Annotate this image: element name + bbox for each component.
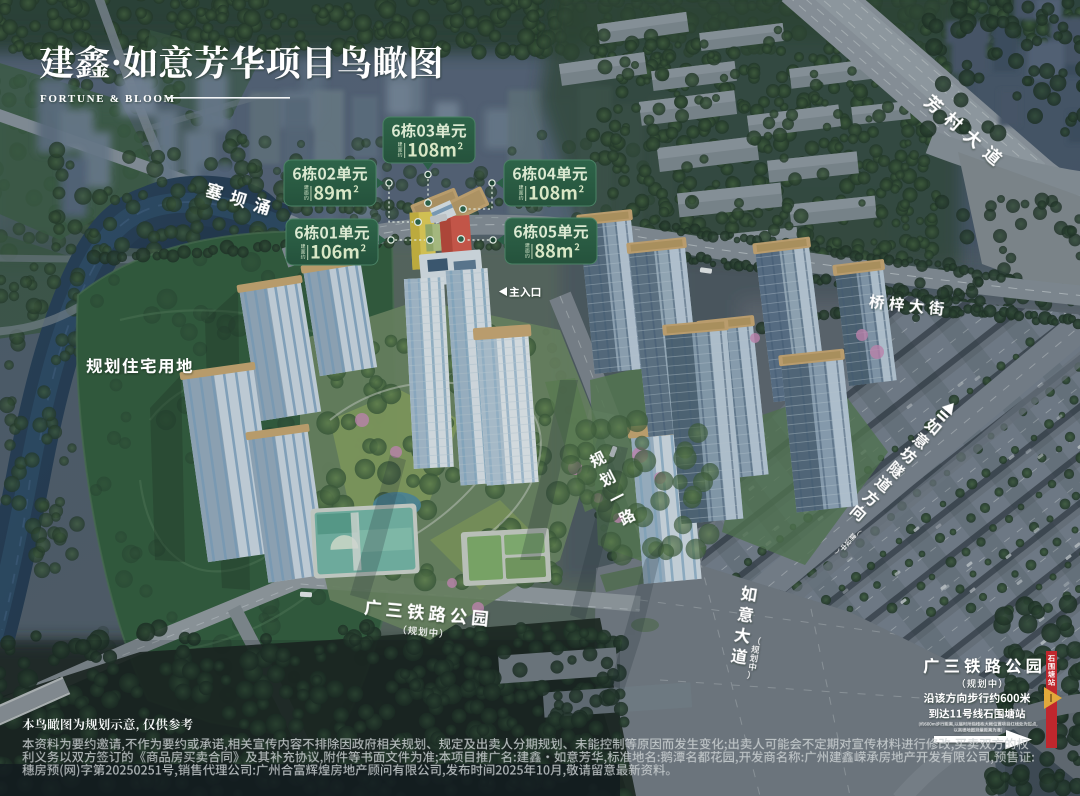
svg-text:FORTUNE & BLOOM: FORTUNE & BLOOM (40, 93, 176, 105)
